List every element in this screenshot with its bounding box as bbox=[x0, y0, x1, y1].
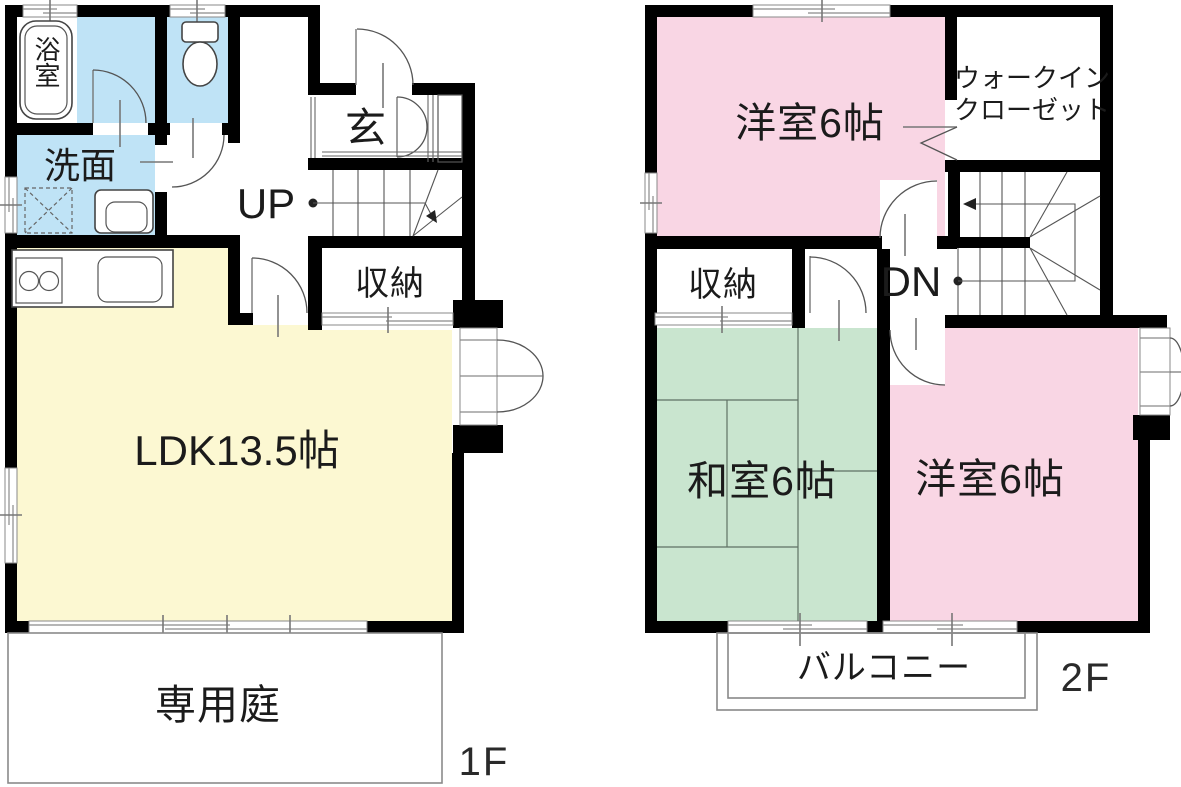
stairs-down-label: DN bbox=[881, 258, 942, 305]
bay-window-1f bbox=[460, 328, 543, 425]
entrance-door-arc bbox=[356, 29, 413, 108]
room-label-wic-line2: クローゼット bbox=[954, 95, 1110, 125]
floor-plan-drawing: 浴室 洗面 玄 UP 収納 LDK13.5帖 専用庭 1F bbox=[0, 0, 1181, 787]
room-label-wic-line1: ウォークイン bbox=[954, 63, 1110, 93]
stairs-1f bbox=[309, 170, 463, 236]
dn-arrow-head bbox=[963, 198, 976, 210]
washbasin-icon bbox=[95, 190, 153, 233]
floor-plan-page: 浴室 洗面 玄 UP 収納 LDK13.5帖 専用庭 1F bbox=[0, 0, 1181, 787]
bay-window-2f bbox=[1140, 328, 1181, 415]
ldk-door-gap bbox=[253, 313, 307, 325]
label-private-garden: 専用庭 bbox=[155, 682, 281, 728]
label-balcony: バルコニー bbox=[797, 649, 971, 687]
room-label-bath: 浴室 bbox=[31, 36, 61, 88]
stairs-up-label: UP bbox=[237, 180, 295, 227]
toilet-door-gap bbox=[170, 123, 222, 135]
entrance-door-gap bbox=[356, 83, 412, 95]
floor-label-1f: 1F bbox=[459, 740, 510, 784]
room-label-ldk: LDK13.5帖 bbox=[134, 427, 339, 474]
room-label-washroom: 洗面 bbox=[44, 145, 116, 186]
toilet-icon bbox=[182, 22, 218, 86]
floor-1f: 浴室 洗面 玄 UP 収納 LDK13.5帖 専用庭 1F bbox=[0, 0, 543, 784]
washroom-door-gap bbox=[155, 145, 167, 192]
room-label-storage-1f: 収納 bbox=[355, 265, 425, 303]
kitchen-counter bbox=[12, 250, 173, 307]
room-label-bedroom-top: 洋室6帖 bbox=[735, 100, 885, 146]
floor-2f: 洋室6帖 ウォークイン クローゼット 収納 DN 和室6帖 洋室6帖 バルコニー… bbox=[640, 0, 1181, 710]
room-label-storage-2f: 収納 bbox=[688, 266, 758, 304]
room-label-bedroom-bottom: 洋室6帖 bbox=[915, 456, 1065, 502]
room-label-tatami: 和室6帖 bbox=[687, 458, 837, 504]
bedroom-bottom-door-pocket bbox=[890, 328, 945, 385]
room-label-entrance: 玄 bbox=[345, 105, 387, 151]
floor-label-2f: 2F bbox=[1061, 656, 1112, 700]
